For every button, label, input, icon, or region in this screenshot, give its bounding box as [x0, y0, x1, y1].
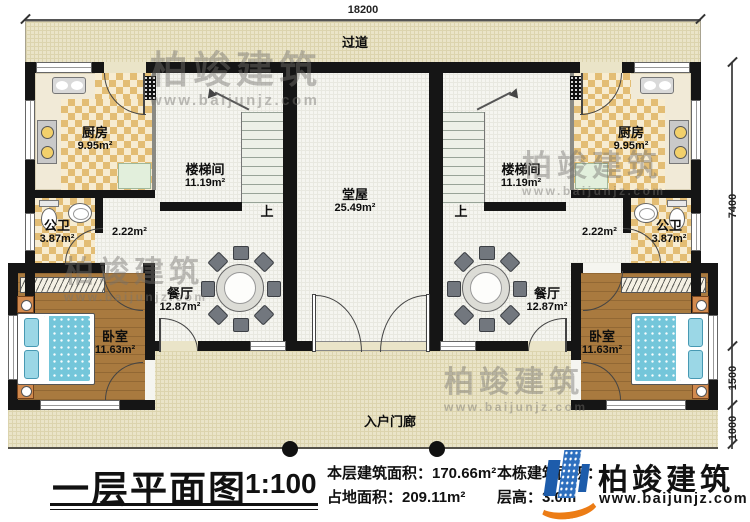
stair-up-label: 上	[253, 205, 281, 219]
bed-left	[17, 313, 95, 385]
watermark: 柏竣建筑 www.baijunjz.com	[522, 152, 666, 197]
stair-treads-left	[241, 112, 283, 204]
door-leaf	[159, 318, 161, 352]
room-label: 厨房	[601, 126, 661, 140]
dimension-right-value: 1000	[727, 408, 739, 448]
dimension-right-value: 1500	[727, 358, 739, 398]
stove-icon	[669, 120, 689, 164]
window	[25, 100, 35, 160]
room-label: 堂屋	[320, 188, 390, 202]
land-area-text: 占地面积：209.11m²	[327, 486, 465, 510]
room-area: 9.95m²	[65, 140, 125, 152]
window	[40, 400, 120, 410]
dining-table	[224, 272, 256, 304]
nightstand-icon	[692, 296, 709, 313]
door-leaf	[143, 73, 145, 115]
brand-url: www.baijunjz.com	[599, 491, 748, 507]
title-underline	[50, 509, 318, 510]
fridge-icon	[118, 163, 151, 189]
chair-icon	[267, 281, 281, 297]
window	[250, 341, 286, 351]
porch-column	[429, 441, 445, 457]
door-opening	[104, 62, 146, 73]
room-area: 25.49m²	[320, 202, 390, 214]
door-leaf	[426, 294, 430, 352]
stair-treads-right	[443, 112, 485, 204]
window	[634, 62, 690, 73]
title-underline	[50, 503, 318, 506]
floor-plan-sheet: 18200 过道 入户门廊 厨房 9.95m² 厨房 9.95m² 公卫	[0, 0, 750, 522]
door-leaf	[312, 294, 316, 352]
room-label: 卧室	[572, 330, 632, 344]
room-label: 卧室	[85, 330, 145, 344]
room-area: 3.87m²	[35, 233, 79, 245]
stair-up-label: 上	[447, 205, 475, 219]
kitchen-sink-icon	[52, 77, 86, 94]
door-opening	[145, 360, 155, 400]
room-label: 餐厅	[517, 287, 577, 301]
wall	[484, 202, 566, 211]
pass-area: 2.22m²	[582, 226, 616, 238]
dimension-right-value: 7400	[727, 186, 739, 226]
porch-column	[282, 441, 298, 457]
watermark-url: www.baijunjz.com	[150, 93, 322, 108]
floor-area-text: 本层建筑面积：170.66m²	[327, 462, 496, 486]
watermark: 柏竣建筑 www.baijunjz.com	[150, 52, 322, 108]
wall	[621, 263, 718, 273]
window	[708, 315, 718, 380]
room-label: 公卫	[647, 219, 691, 233]
chair-icon	[233, 318, 249, 332]
room-area: 12.87m²	[517, 301, 577, 313]
room-label: 公卫	[35, 219, 79, 233]
watermark: 柏竣建筑 www.baijunjz.com	[444, 368, 588, 413]
watermark-brand: 柏竣建筑	[150, 50, 322, 92]
window	[691, 100, 701, 160]
dimension-line-top	[25, 19, 701, 21]
room-label: 厨房	[65, 126, 125, 140]
porch-label: 入户门廊	[350, 415, 430, 429]
wall	[160, 202, 242, 211]
wall	[25, 190, 155, 198]
wall	[429, 62, 443, 351]
stove-icon	[37, 120, 57, 164]
dimension-top-value: 18200	[333, 4, 393, 16]
scale-label: 1:100	[245, 468, 317, 500]
kitchen-sink-icon	[640, 77, 674, 94]
window	[25, 213, 35, 251]
chair-icon	[479, 246, 495, 260]
chair-icon	[233, 246, 249, 260]
window	[606, 400, 686, 410]
door-leaf	[565, 318, 567, 352]
bed-right	[631, 313, 709, 385]
window	[440, 341, 476, 351]
pass-area: 2.22m²	[112, 226, 146, 238]
corridor-label: 过道	[325, 36, 385, 50]
brand-logo-icon	[536, 448, 596, 512]
room-area: 3.87m²	[647, 233, 691, 245]
room-area: 11.19m²	[170, 177, 240, 189]
porch-edge	[8, 447, 718, 449]
chair-icon	[479, 318, 495, 332]
chair-icon	[447, 281, 461, 297]
toilet-icon	[39, 200, 59, 207]
room-area: 11.63m²	[572, 344, 632, 356]
toilet-icon	[667, 200, 687, 207]
room-area: 11.63m²	[85, 344, 145, 356]
dining-table	[470, 272, 502, 304]
door-leaf	[581, 73, 583, 115]
room-label: 楼梯间	[170, 163, 240, 177]
nightstand-icon	[17, 296, 34, 313]
window	[691, 213, 701, 251]
watermark: 柏竣建筑 www.baijunjz.com	[64, 258, 208, 303]
door-opening	[580, 62, 622, 73]
window	[36, 62, 92, 73]
